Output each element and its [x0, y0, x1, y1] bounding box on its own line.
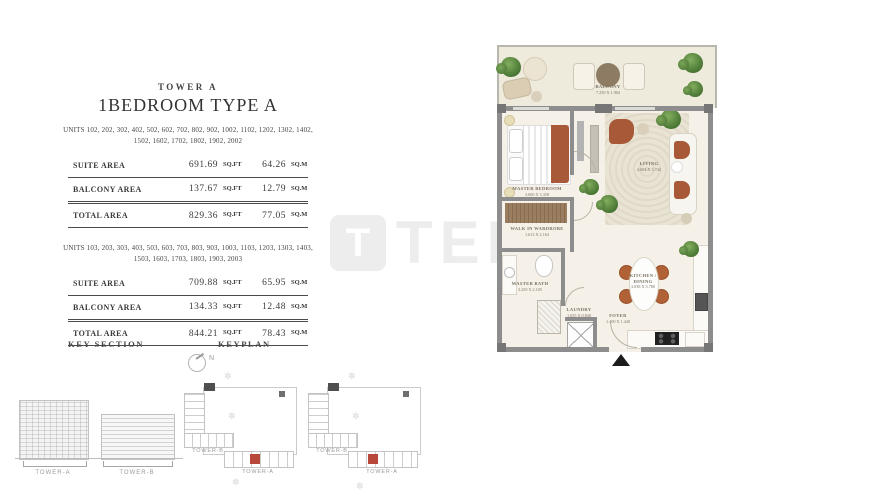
sqft-unit: SQ.FT [218, 211, 253, 218]
sqm-value: 77.05 [253, 211, 286, 221]
room-dim: 7.250 X 1.904 [569, 90, 647, 95]
entry-arrow-icon [612, 354, 630, 366]
table-row: SUITE AREA 709.88 SQ.FT 65.95 SQ.M [68, 272, 308, 296]
plant-icon [661, 109, 681, 129]
column [497, 104, 506, 113]
row-label: TOTAL AREA [68, 211, 163, 220]
bed-blanket [551, 125, 569, 183]
room-dim: 1.613 X 2.164 [509, 232, 565, 237]
table-row-total: TOTAL AREA 829.36 SQ.FT 77.05 SQ.M [68, 203, 308, 228]
highlighted-unit [250, 454, 260, 464]
floorplan-drawing: BALCONY 7.250 X 1.904 LIVING 4.684 X 3.7… [497, 45, 713, 371]
sliding-door [513, 107, 549, 110]
tower-b-units-row [184, 433, 234, 448]
tower-b-units-row [308, 433, 358, 448]
pouf [531, 91, 542, 102]
tower-b-label: TOWER-B [308, 448, 356, 454]
tekce-logo-icon: T [330, 215, 386, 271]
table-row: BALCONY AREA 134.33 SQ.FT 12.48 SQ.M [68, 296, 308, 320]
sqm-value: 64.26 [253, 160, 286, 170]
key-section-heading: KEY SECTION [68, 339, 144, 349]
site-mark [403, 391, 409, 397]
sqft-unit: SQ.FT [218, 303, 253, 310]
deco-plant-mark-icon: ✽ [348, 372, 356, 382]
laundry-closet [567, 322, 595, 349]
keyplan-heading: KEYPLAN [218, 339, 271, 349]
stove [655, 332, 679, 345]
armchair [609, 119, 634, 144]
toilet [535, 255, 553, 277]
tower-b-elevation [101, 414, 175, 460]
tower-b-units [184, 393, 205, 437]
sqm-value: 12.48 [253, 302, 286, 312]
sqft-unit: SQ.FT [218, 279, 253, 286]
sqft-value: 137.67 [163, 184, 218, 194]
table-row: BALCONY AREA 137.67 SQ.FT 12.79 SQ.M [68, 178, 308, 202]
units-list-2: UNITS 103, 203, 303, 403, 503, 603, 703,… [62, 243, 314, 265]
sqm-unit: SQ.M [286, 329, 308, 336]
sqm-unit: SQ.M [286, 185, 308, 192]
units-list-1: UNITS 102, 202, 302, 402, 502, 602, 702,… [62, 125, 314, 147]
area-table-2: SUITE AREA 709.88 SQ.FT 65.95 SQ.M BALCO… [68, 272, 308, 347]
deco-plant-mark-icon: ✽ [352, 412, 360, 422]
column [595, 104, 612, 113]
row-label: BALCONY AREA [68, 303, 163, 312]
sliding-door [615, 107, 655, 110]
site-mark [279, 391, 285, 397]
master-bedroom-label: MASTER BEDROOM 3.600 X 3.358 [505, 186, 569, 197]
highlighted-unit [368, 454, 378, 464]
sqft-unit: SQ.FT [218, 329, 253, 336]
wall-right [708, 106, 713, 352]
sqm-unit: SQ.M [286, 211, 308, 218]
wall-laundry-right [593, 317, 597, 350]
sqft-value: 691.69 [163, 160, 218, 170]
keyplan-diagram-1: TOWER-B TOWER-A [182, 378, 304, 496]
sofa-chair [674, 181, 690, 199]
site-block [328, 383, 339, 391]
wall-bedroom [570, 111, 574, 175]
side-table [681, 213, 692, 224]
plant-icon [683, 53, 703, 73]
sink-basin [504, 267, 515, 278]
tower-b-bracket [103, 461, 173, 467]
plant-icon [583, 179, 599, 195]
sqm-unit: SQ.M [286, 279, 308, 286]
deco-plant-mark-icon: ✽ [228, 412, 236, 422]
kitchen-dining-label: KITCHEN / DINING 3.038 X 3.780 [623, 273, 663, 290]
tower-a-elevation [19, 400, 89, 460]
sqft-value: 134.33 [163, 302, 218, 312]
shower [537, 300, 561, 334]
table-row: SUITE AREA 691.69 SQ.FT 64.26 SQ.M [68, 154, 308, 178]
sqm-value: 65.95 [253, 278, 286, 288]
balcony-label: BALCONY 7.250 X 1.904 [569, 84, 647, 95]
row-label: SUITE AREA [68, 279, 163, 288]
column [497, 343, 506, 352]
plant-icon [501, 57, 521, 77]
keyplan-diagram-2: TOWER-B TOWER-A [306, 378, 428, 496]
brochure-page: { "title_block": { "tower": "TOWER A", "… [0, 0, 890, 500]
tower-b-label: TOWER-B [184, 448, 232, 454]
column [704, 104, 713, 113]
room-dim: 3.250 X 2.105 [503, 287, 557, 292]
sqm-unit: SQ.M [286, 303, 308, 310]
oven [695, 293, 708, 311]
side-table [637, 123, 649, 135]
north-compass-icon: N [188, 352, 218, 374]
plant-icon [687, 81, 703, 97]
bedside-lamp [504, 115, 515, 126]
sqft-value: 844.21 [163, 329, 218, 339]
deco-plant-mark-icon: ✽ [232, 478, 240, 488]
row-label: TOTAL AREA [68, 329, 163, 338]
tower-a-label: TOWER-A [350, 469, 414, 475]
sqft-unit: SQ.FT [218, 185, 253, 192]
column [704, 343, 713, 352]
deco-plant-mark-icon: ✽ [356, 482, 364, 492]
room-name: MASTER BEDROOM [505, 186, 569, 192]
north-label: N [209, 355, 214, 362]
room-dim: 3.038 X 3.780 [623, 284, 663, 289]
wall-bedroom-wardrobe [502, 197, 574, 201]
sqm-value: 78.43 [253, 329, 286, 339]
tower-a-label: TOWER-A [19, 470, 87, 476]
wall-bottom-right [641, 347, 713, 352]
room-dim: 4.684 X 3.744 [623, 167, 675, 172]
tower-a-label: TOWER-A [226, 469, 290, 475]
wall-wardrobe-bath [502, 248, 565, 252]
tower-b-label: TOWER-B [101, 470, 173, 476]
wall-wardrobe-right [570, 197, 574, 252]
sqft-value: 709.88 [163, 278, 218, 288]
row-label: BALCONY AREA [68, 185, 163, 194]
site-block [204, 383, 215, 391]
pillow [509, 129, 523, 153]
sqft-value: 829.36 [163, 211, 218, 221]
info-column: TOWER A 1BEDROOM TYPE A UNITS 102, 202, … [62, 82, 314, 346]
sqm-unit: SQ.M [286, 161, 308, 168]
tower-a-units [348, 451, 418, 468]
row-label: SUITE AREA [68, 161, 163, 170]
ground-line [15, 458, 183, 459]
wall-bath-right [561, 248, 565, 306]
tower-b-units [308, 393, 329, 437]
sofa-chair [674, 141, 690, 159]
wardrobe-label: WALK IN WARDROBE 1.613 X 2.164 [509, 226, 565, 237]
kitchen-sink [685, 332, 705, 347]
master-bath-label: MASTER BATH 3.250 X 2.105 [503, 281, 557, 292]
plant-icon [600, 195, 618, 213]
tower-name: TOWER A [62, 82, 314, 92]
bed-sheet [523, 125, 553, 185]
room-name: KITCHEN / DINING [623, 273, 663, 284]
page-title: 1BEDROOM TYPE A [62, 95, 314, 116]
area-table-1: SUITE AREA 691.69 SQ.FT 64.26 SQ.M BALCO… [68, 154, 308, 229]
sqft-unit: SQ.FT [218, 161, 253, 168]
deco-plant-mark-icon: ✽ [224, 372, 232, 382]
plant-icon [683, 241, 699, 257]
room-name: WALK IN WARDROBE [509, 226, 565, 232]
key-section-drawing: TOWER-A TOWER-B [15, 388, 187, 488]
wall-left [497, 106, 502, 352]
living-label: LIVING 4.684 X 3.744 [623, 161, 675, 172]
wardrobe-closet [505, 203, 567, 223]
sqm-value: 12.79 [253, 184, 286, 194]
wall-laundry-top [565, 317, 595, 321]
pillow [509, 157, 523, 181]
tower-a-bracket [23, 461, 87, 467]
